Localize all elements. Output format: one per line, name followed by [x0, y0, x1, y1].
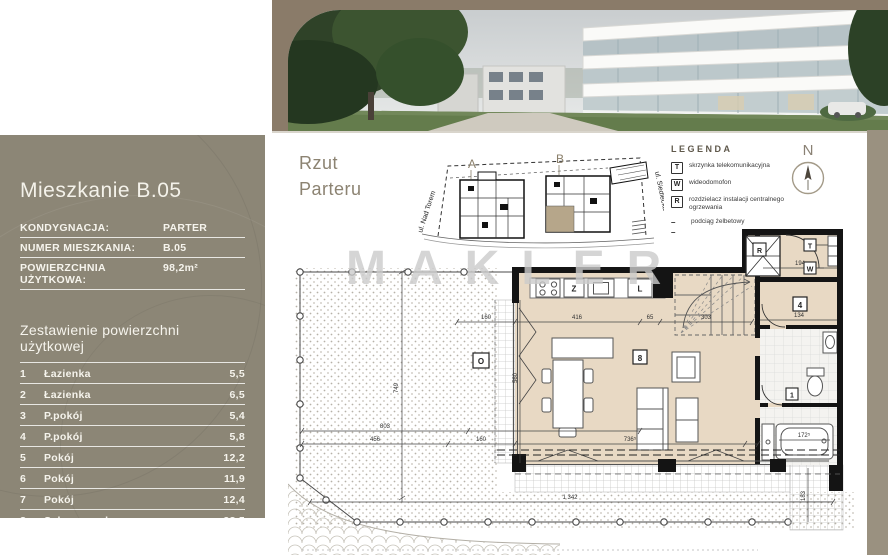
- room-rno: 6: [20, 473, 44, 485]
- room-row: 4P.pokój5,8: [20, 426, 245, 447]
- room-rname: Łazienka: [44, 368, 230, 380]
- legend-item: Wwideodomofon: [671, 179, 791, 191]
- tag-t-label: T: [808, 244, 813, 251]
- garden-o-label: O: [478, 357, 484, 366]
- room-rname: P.pokój: [44, 431, 230, 443]
- legend-box-symbol: W: [671, 179, 683, 191]
- kitchen-l-label: L: [638, 285, 643, 294]
- building-rendering-illustration: [288, 10, 888, 131]
- plan-title-line1: Rzut: [299, 150, 362, 176]
- room-rarea: 11,9: [224, 473, 245, 485]
- dim-65: 65: [647, 315, 654, 321]
- room-rarea: 5,5: [230, 368, 246, 380]
- dim-1342: 1 342: [562, 495, 578, 501]
- dim-160a: 160: [481, 315, 492, 321]
- room-4-label: 4: [798, 301, 803, 310]
- room-rarea: 38,5: [223, 515, 245, 519]
- legend-item-text: rozdzielacz instalacji centralnego ogrze…: [689, 196, 791, 213]
- room-rarea: 5,4: [230, 410, 246, 422]
- compass: N: [788, 142, 828, 204]
- legend-items: Tskrzynka telekomunikacyjnaWwideodomofon…: [671, 162, 791, 238]
- legend-item-text: skrzynka telekomunikacyjna: [689, 162, 770, 170]
- site-label-building-b: B: [556, 152, 564, 166]
- info-value: B.05: [163, 242, 245, 254]
- room-rarea: 12,4: [223, 494, 245, 506]
- room-rname: P.pokój: [44, 410, 230, 422]
- apartment-info-panel: Mieszkanie B.05 KONDYGNACJA: PARTER NUME…: [0, 135, 265, 518]
- dim-736: 736⁵: [624, 436, 637, 443]
- kitchen-counter: Z L: [530, 278, 665, 298]
- dim-134: 134: [794, 313, 805, 319]
- dim-749: 749: [394, 382, 400, 393]
- room-row: 3P.pokój5,4: [20, 405, 245, 426]
- right-side-band: [867, 130, 888, 555]
- tag-w-label: W: [807, 267, 814, 274]
- info-label: POWIERZCHNIA UŻYTKOWA:: [20, 262, 163, 286]
- room-rarea: 12,2: [223, 452, 245, 464]
- page: Mieszkanie B.05 KONDYGNACJA: PARTER NUME…: [0, 0, 888, 555]
- bath-1-label: 1: [790, 393, 794, 400]
- room-rname: Łazienka: [44, 389, 230, 401]
- room-row: 2Łazienka6,5: [20, 384, 245, 405]
- legend-item: Tskrzynka telekomunikacyjna: [671, 162, 791, 174]
- room-rno: 1: [20, 368, 44, 380]
- dim-172: 172⁵: [798, 432, 811, 439]
- photo-divider-line: [272, 131, 888, 133]
- areas-section-title: Zestawienie powierzchni użytkowej: [20, 322, 245, 354]
- kitchen-z-label: Z: [572, 285, 577, 294]
- room-rname: Pokój: [44, 494, 223, 506]
- room-rname: Pokój: [44, 452, 223, 464]
- dim-303: 303: [701, 315, 712, 321]
- rooms-area-table: 1Łazienka5,52Łazienka6,53P.pokój5,44P.po…: [20, 362, 245, 518]
- room-rno: 2: [20, 389, 44, 401]
- room-rno: 3: [20, 410, 44, 422]
- room-rname: Salon z aneksem: [44, 515, 223, 519]
- dim-803: 803: [380, 424, 391, 430]
- room-rarea: 5,8: [230, 431, 246, 443]
- floor-plan-drawing: Z L: [288, 228, 868, 555]
- compass-rose-icon: [788, 159, 828, 199]
- shaft-r-label: R: [757, 248, 762, 255]
- room-rno: 4: [20, 431, 44, 443]
- legend-box-symbol: T: [671, 162, 683, 174]
- room-rno: 8: [20, 515, 44, 519]
- legend-item-text: podciąg żelbetowy: [691, 218, 744, 226]
- info-value: PARTER: [163, 222, 245, 234]
- info-label: KONDYGNACJA:: [20, 222, 163, 234]
- dim-560: 560: [513, 372, 519, 383]
- plan-title: Rzut Parteru: [299, 150, 362, 202]
- dim-160b: 160: [476, 437, 487, 443]
- legend-title: LEGENDA: [671, 144, 791, 154]
- room-row: 1Łazienka5,5: [20, 363, 245, 384]
- room-row: 6Pokój11,9: [20, 468, 245, 489]
- info-label: NUMER MIESZKANIA:: [20, 242, 163, 254]
- dim-456: 456: [370, 437, 381, 443]
- room-rname: Pokój: [44, 473, 224, 485]
- room-rno: 5: [20, 452, 44, 464]
- room-row: 8Salon z aneksem38,5: [20, 510, 245, 518]
- room-row: 5Pokój12,2: [20, 447, 245, 468]
- info-value: 98,2m²: [163, 262, 245, 274]
- plan-title-line2: Parteru: [299, 176, 362, 202]
- building-photo: [288, 10, 888, 131]
- site-street-right-label: ul. Siedlecka: [653, 171, 664, 211]
- room-rarea: 6,5: [230, 389, 246, 401]
- compass-north-label: N: [788, 142, 828, 159]
- room-row: 7Pokój12,4: [20, 489, 245, 510]
- living-8-label: 8: [638, 354, 643, 363]
- dim-183: 183: [801, 490, 807, 501]
- info-row-powierzchnia: POWIERZCHNIA UŻYTKOWA: 98,2m²: [20, 258, 245, 290]
- dim-416: 416: [572, 315, 583, 321]
- building-photo-backdrop: [272, 0, 888, 131]
- info-row-kondygnacja: KONDYGNACJA: PARTER: [20, 218, 245, 238]
- legend-item-text: wideodomofon: [689, 179, 731, 187]
- apartment-title: Mieszkanie B.05: [20, 179, 245, 203]
- legend-box-symbol: R: [671, 196, 683, 208]
- site-label-building-a: A: [468, 157, 476, 171]
- legend-item: Rrozdzielacz instalacji centralnego ogrz…: [671, 196, 791, 213]
- info-row-numer: NUMER MIESZKANIA: B.05: [20, 238, 245, 258]
- apartment-info-table: KONDYGNACJA: PARTER NUMER MIESZKANIA: B.…: [20, 218, 245, 290]
- room-rno: 7: [20, 494, 44, 506]
